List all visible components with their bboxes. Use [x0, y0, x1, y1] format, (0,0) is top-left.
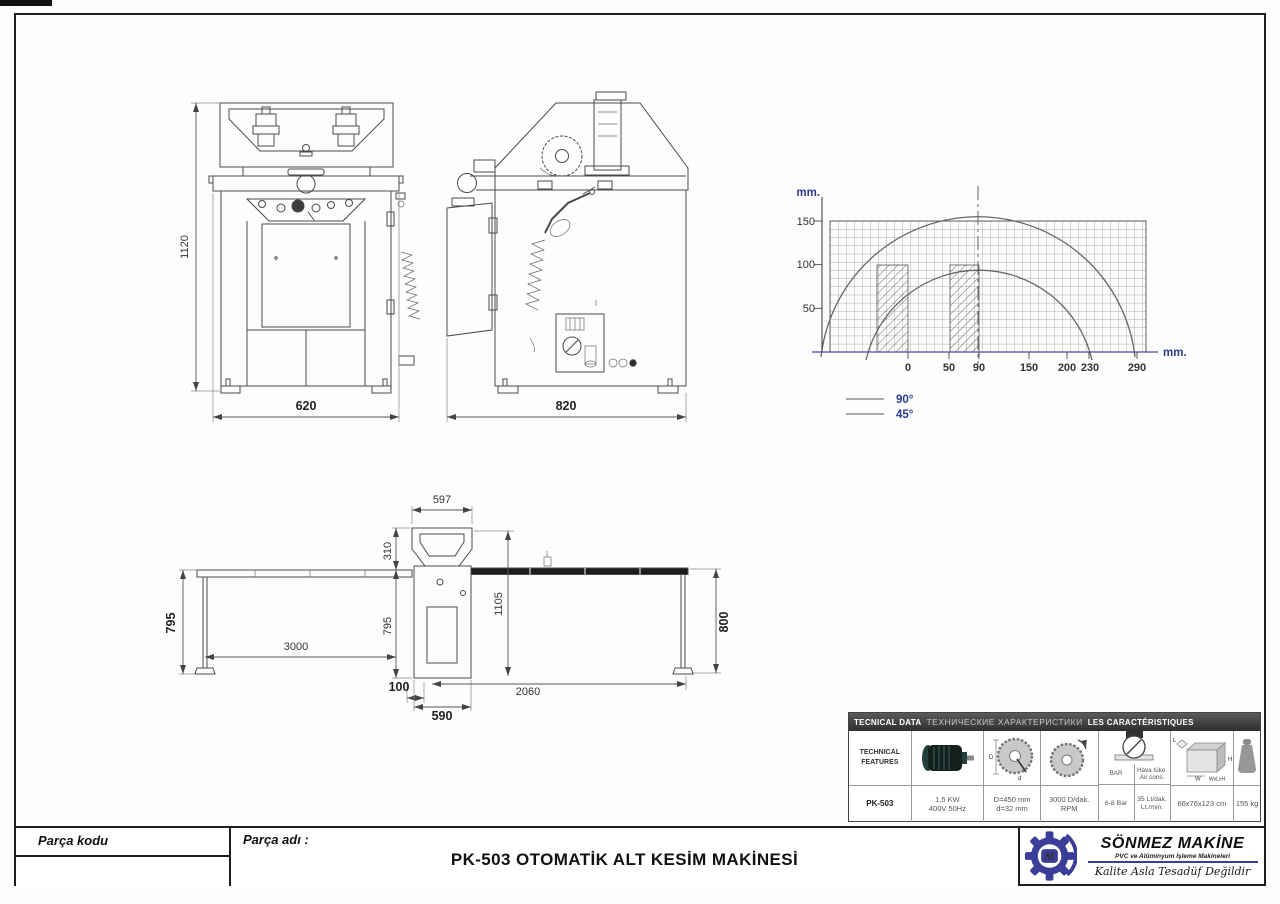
gear-icon: M — [1025, 831, 1076, 880]
ytick-150: 150 — [797, 216, 815, 228]
dim-right-table-depth: 800 — [717, 612, 731, 633]
ytick-50: 50 — [803, 303, 815, 315]
dim-total-depth: 1105 — [493, 592, 505, 616]
dim-side-depth: 820 — [556, 399, 577, 413]
xtick-0: 0 — [905, 362, 911, 374]
features-line2: FEATURES — [861, 758, 898, 768]
dim-body-width: 590 — [432, 709, 453, 723]
logo-cell: M SÖNMEZ MAKİNE PVC ve Alüminyum İşleme … — [1018, 826, 1266, 886]
dim-hood-width: 597 — [433, 494, 451, 506]
model-label: PK-503 — [866, 799, 893, 809]
front-view-machine — [209, 103, 420, 393]
side-view: 820 — [447, 92, 688, 422]
xtick-230: 230 — [1081, 362, 1099, 374]
dim-front-width: 620 — [296, 399, 317, 413]
saw-blade-rpm-icon — [1044, 736, 1094, 780]
drawing-title: PK-503 OTOMATİK ALT KESİM MAKİNESİ — [231, 850, 1018, 870]
part-code-label: Parça kodu — [16, 828, 229, 857]
weight-icon — [1236, 737, 1258, 779]
part-code-cell: Parça kodu — [14, 826, 231, 886]
capacity-chart: mm. mm. 150 100 50 0 50 90 150 200 230 2… — [796, 186, 1186, 421]
column-weight: 155 kg — [1233, 731, 1260, 822]
logo-divider — [1088, 861, 1258, 863]
x-axis-unit: mm. — [1163, 347, 1187, 359]
dims-w-label: W — [1195, 777, 1201, 782]
speed-value: 3000 D/dak. — [1049, 795, 1089, 804]
features-label: TECHNICAL FEATURES — [849, 731, 911, 786]
weight-value: 155 kg — [1236, 799, 1259, 808]
dim-hood-depth: 310 — [382, 542, 394, 560]
side-view-dimensions: 820 — [447, 338, 686, 422]
xtick-200: 200 — [1058, 362, 1076, 374]
dim-offset: 100 — [389, 680, 410, 694]
blade-diameter: D=450 mm — [994, 795, 1031, 804]
pneumatic-subheaders: BAR Hava tüke.Air cons. — [1099, 764, 1170, 785]
logo-text-block: SÖNMEZ MAKİNE PVC ve Alüminyum İşleme Ma… — [1081, 835, 1264, 878]
column-pneumatic: BAR Hava tüke.Air cons. 6-8 Bar 35 Lt/da… — [1098, 731, 1170, 822]
dim-right-table-length: 2060 — [516, 686, 540, 698]
column-blade: D d D=450 mm d=32 mm — [983, 731, 1040, 822]
ytick-100: 100 — [797, 259, 815, 271]
dims-h-label: H — [1228, 757, 1232, 763]
company-name: SÖNMEZ MAKİNE — [1101, 835, 1245, 853]
technical-data-table: TECNICAL DATA ТЕХНИЧЕСКИЕ ХАРАКТЕРИСТИКИ… — [848, 712, 1261, 822]
speed-unit: RPM — [1061, 804, 1078, 813]
column-speed: 3000 D/dak. RPM — [1040, 731, 1098, 822]
air-value: 35 Lt/dak.Lt./min. — [1134, 785, 1170, 822]
xtick-150: 150 — [1020, 362, 1038, 374]
dim-left-table-length: 3000 — [284, 641, 308, 653]
dims-formula-label: WxLxH — [1209, 777, 1226, 782]
company-logo-icon: M — [1022, 829, 1077, 883]
pressure-value: 6-8 Bar — [1099, 785, 1134, 822]
blade-d-label: D — [989, 755, 994, 761]
side-view-machine — [447, 92, 688, 393]
plan-view-machine — [195, 528, 693, 678]
xtick-50: 50 — [943, 362, 955, 374]
column-dimensions: H L W WxLxH 66x76x123 cm — [1170, 731, 1234, 822]
dims-l-label: L — [1173, 738, 1177, 744]
motor-voltage: 400V 50Hz — [929, 804, 966, 813]
motor-icon — [918, 738, 976, 778]
dim-body-depth: 795 — [382, 617, 394, 635]
chart-legend: 90° 45° — [846, 394, 914, 421]
dims-value: 66x76x123 cm — [1177, 799, 1226, 808]
company-subtitle: PVC ve Alüminyum İşleme Makineleri — [1115, 853, 1230, 860]
legend-label-45: 45° — [896, 409, 914, 421]
blade-bore-label: d — [1018, 776, 1021, 782]
pneumatic-values: 6-8 Bar 35 Lt/dak.Lt./min. — [1099, 785, 1170, 822]
table-header-ru: ТЕХНИЧЕСКИЕ ХАРАКТЕРИСТИКИ — [926, 717, 1082, 727]
dim-front-height: 1120 — [179, 235, 191, 259]
xtick-90: 90 — [973, 362, 985, 374]
pressure-header: BAR — [1099, 764, 1134, 784]
saw-blade-diameter-icon: D d — [986, 734, 1038, 782]
y-axis-unit: mm. — [796, 187, 820, 199]
features-line1: TECHNICAL — [860, 748, 900, 758]
table-header-fr: LES CARACTÉRISTIQUES — [1088, 718, 1194, 727]
column-features: TECHNICAL FEATURES PK-503 — [849, 731, 911, 822]
dim-left-table-depth: 795 — [164, 613, 178, 634]
air-header: Hava tüke.Air cons. — [1134, 764, 1170, 784]
air-pressure-icon — [1102, 731, 1166, 764]
xtick-290: 290 — [1128, 362, 1146, 374]
datasheet-page: 1120 620 — [0, 0, 1280, 904]
profile-hatch-right — [950, 265, 979, 352]
legend-label-90: 90° — [896, 394, 914, 406]
column-motor: 1,5 KW 400V 50Hz — [911, 731, 984, 822]
table-header-en: TECNICAL DATA — [854, 718, 921, 727]
part-name-cell: Parça adı : PK-503 OTOMATİK ALT KESİM MA… — [231, 826, 1018, 886]
motor-power: 1,5 KW — [935, 795, 960, 804]
logo-monogram: M — [1045, 851, 1055, 863]
plan-view: 597 310 795 795 3000 1105 800 — [164, 494, 731, 723]
part-name-label: Parça adı : — [243, 832, 309, 847]
blade-bore: d=32 mm — [996, 804, 1027, 813]
dimensions-icon: H L W WxLxH — [1171, 735, 1233, 781]
company-slogan: Kalite Asla Tesadüf Değildir — [1095, 865, 1251, 878]
front-view: 1120 620 — [179, 103, 420, 422]
table-header: TECNICAL DATA ТЕХНИЧЕСКИЕ ХАРАКТЕРИСТИКИ… — [849, 713, 1260, 731]
